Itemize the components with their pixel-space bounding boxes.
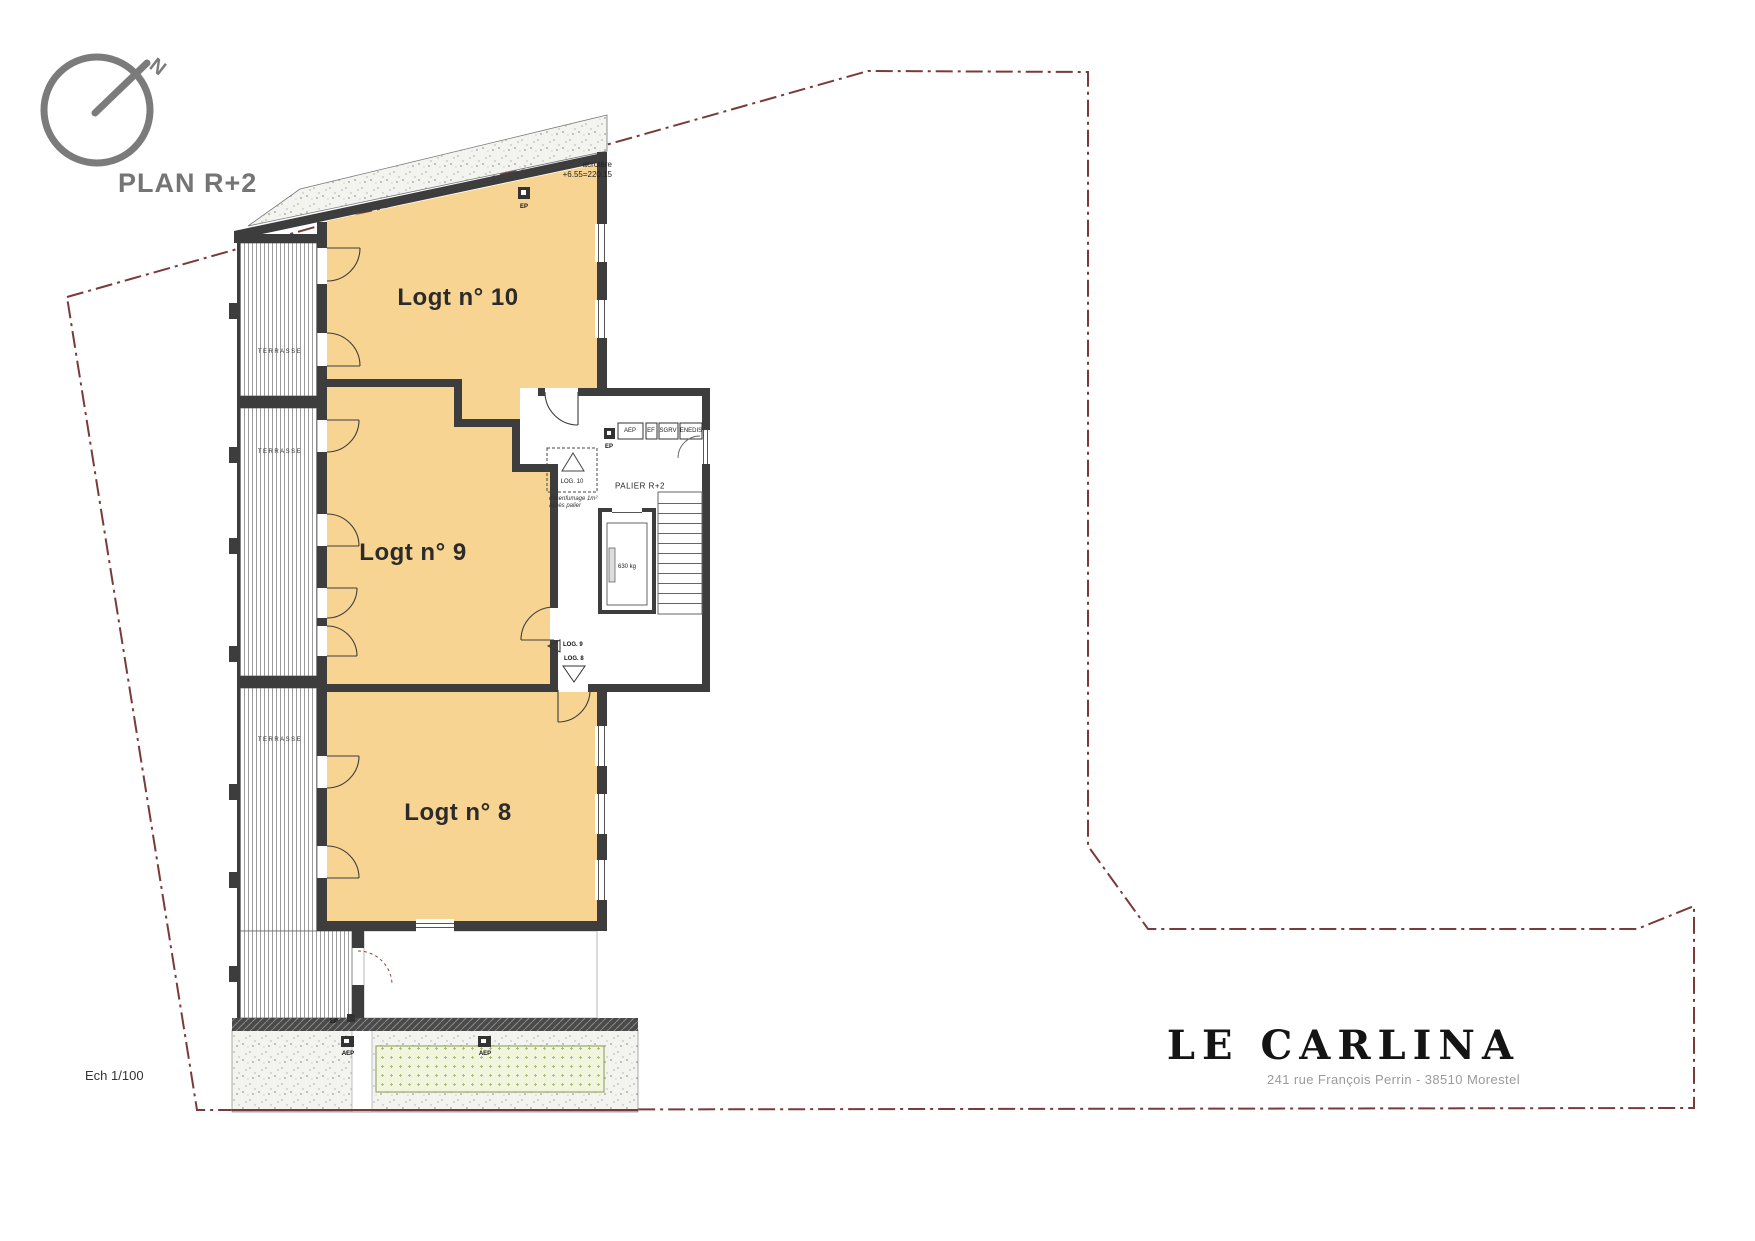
terrace-label-1: TERRASSE: [258, 349, 302, 355]
meter-label-aep: AEP: [624, 428, 636, 434]
ep-label-top: EP: [520, 204, 528, 210]
acrotere-annotation: acrotère +6.55=220.15: [500, 160, 612, 180]
terrace-label-2: TERRASSE: [258, 449, 302, 455]
apartment-label-9: Logt n° 9: [359, 539, 466, 567]
aep-label-1: AEP: [342, 1051, 354, 1057]
ground-band: [232, 1030, 638, 1112]
elevator-shaft: [600, 510, 654, 612]
page-title: PLAN R+2: [118, 168, 257, 199]
north-compass-icon: [44, 57, 150, 163]
meter-label-sgrv: SGRV: [660, 428, 677, 434]
south-loggia: [364, 931, 597, 1018]
entry-label-log8: LOG. 8: [564, 656, 584, 662]
project-logo: LE CARLINA: [1167, 1022, 1520, 1069]
smoke-vent-label: LOG. 10: [561, 479, 584, 485]
acrotere-word: acrotère: [583, 160, 612, 169]
terrace-label-3: TERRASSE: [258, 737, 302, 743]
aep-label-2: AEP: [479, 1051, 491, 1057]
acrotere-level: +6.55=220.15: [563, 170, 612, 179]
apartment-label-10: Logt n° 10: [397, 284, 518, 312]
ep-label-bottom: EP: [330, 1019, 338, 1025]
entry-label-log9: LOG. 9: [563, 642, 583, 648]
smoke-note-line1: désenfumage 1m²: [549, 496, 597, 502]
smoke-note-line2: accès palier: [549, 503, 581, 509]
ep-label-core: EP: [605, 444, 613, 450]
landing-label: PALIER R+2: [615, 482, 665, 491]
smoke-vent-note: désenfumage 1m² accès palier: [549, 496, 597, 510]
project-address: 241 rue François Perrin - 38510 Morestel: [1267, 1072, 1520, 1087]
scale-label: Ech 1/100: [85, 1068, 144, 1083]
bottom-facade-wall: [232, 1018, 638, 1031]
floor-plan-sheet: N PLAN R+2 Logt n° 10 Logt n° 9 Logt n° …: [0, 0, 1755, 1241]
elevator-capacity: 630 kg: [618, 564, 636, 570]
apartment-label-8: Logt n° 8: [404, 799, 511, 827]
meter-label-ef: EF: [647, 428, 655, 434]
meter-label-enedis: ENEDIS: [680, 428, 702, 434]
